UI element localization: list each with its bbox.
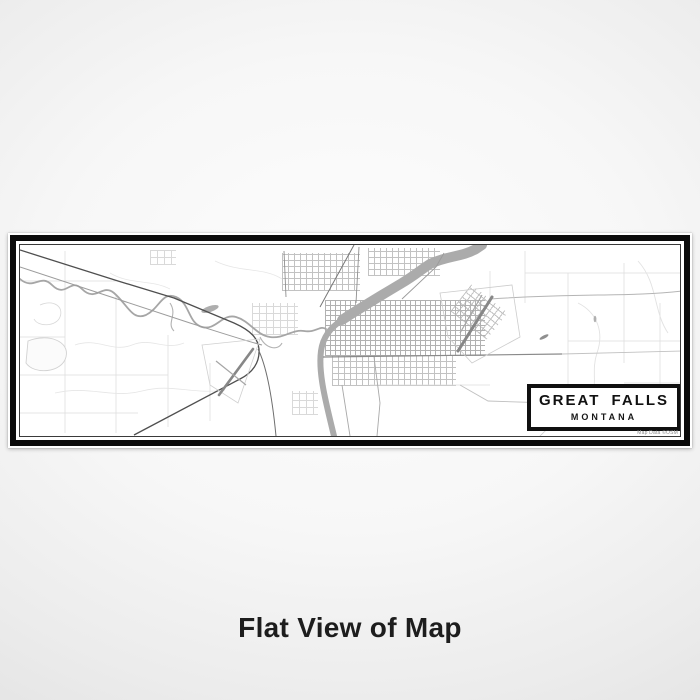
caption: Flat View of Map — [0, 612, 700, 644]
map-title-box: GREAT FALLS MONTANA — [527, 384, 681, 431]
map-print[interactable]: GREAT FALLS MONTANA Map Data ©OSM — [8, 233, 692, 448]
map-inner-border: GREAT FALLS MONTANA Map Data ©OSM — [19, 244, 681, 437]
map-frame: GREAT FALLS MONTANA Map Data ©OSM — [10, 235, 690, 446]
map-title: GREAT FALLS — [531, 392, 677, 410]
map-subtitle: MONTANA — [531, 412, 677, 422]
map-attribution: Map Data ©OSM — [637, 430, 678, 436]
